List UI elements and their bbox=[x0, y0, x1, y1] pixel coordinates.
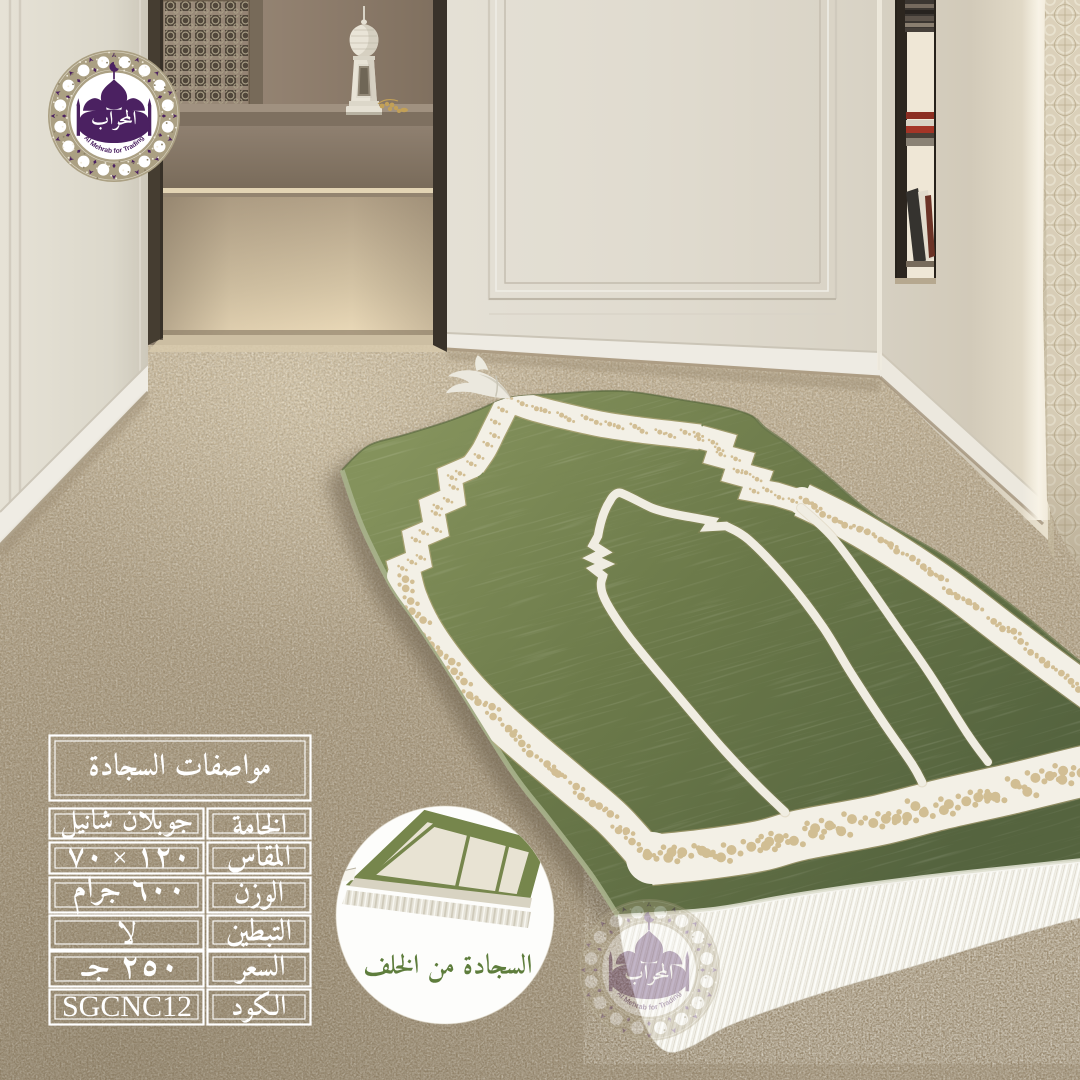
svg-text:SGCNC12: SGCNC12 bbox=[62, 990, 192, 1023]
